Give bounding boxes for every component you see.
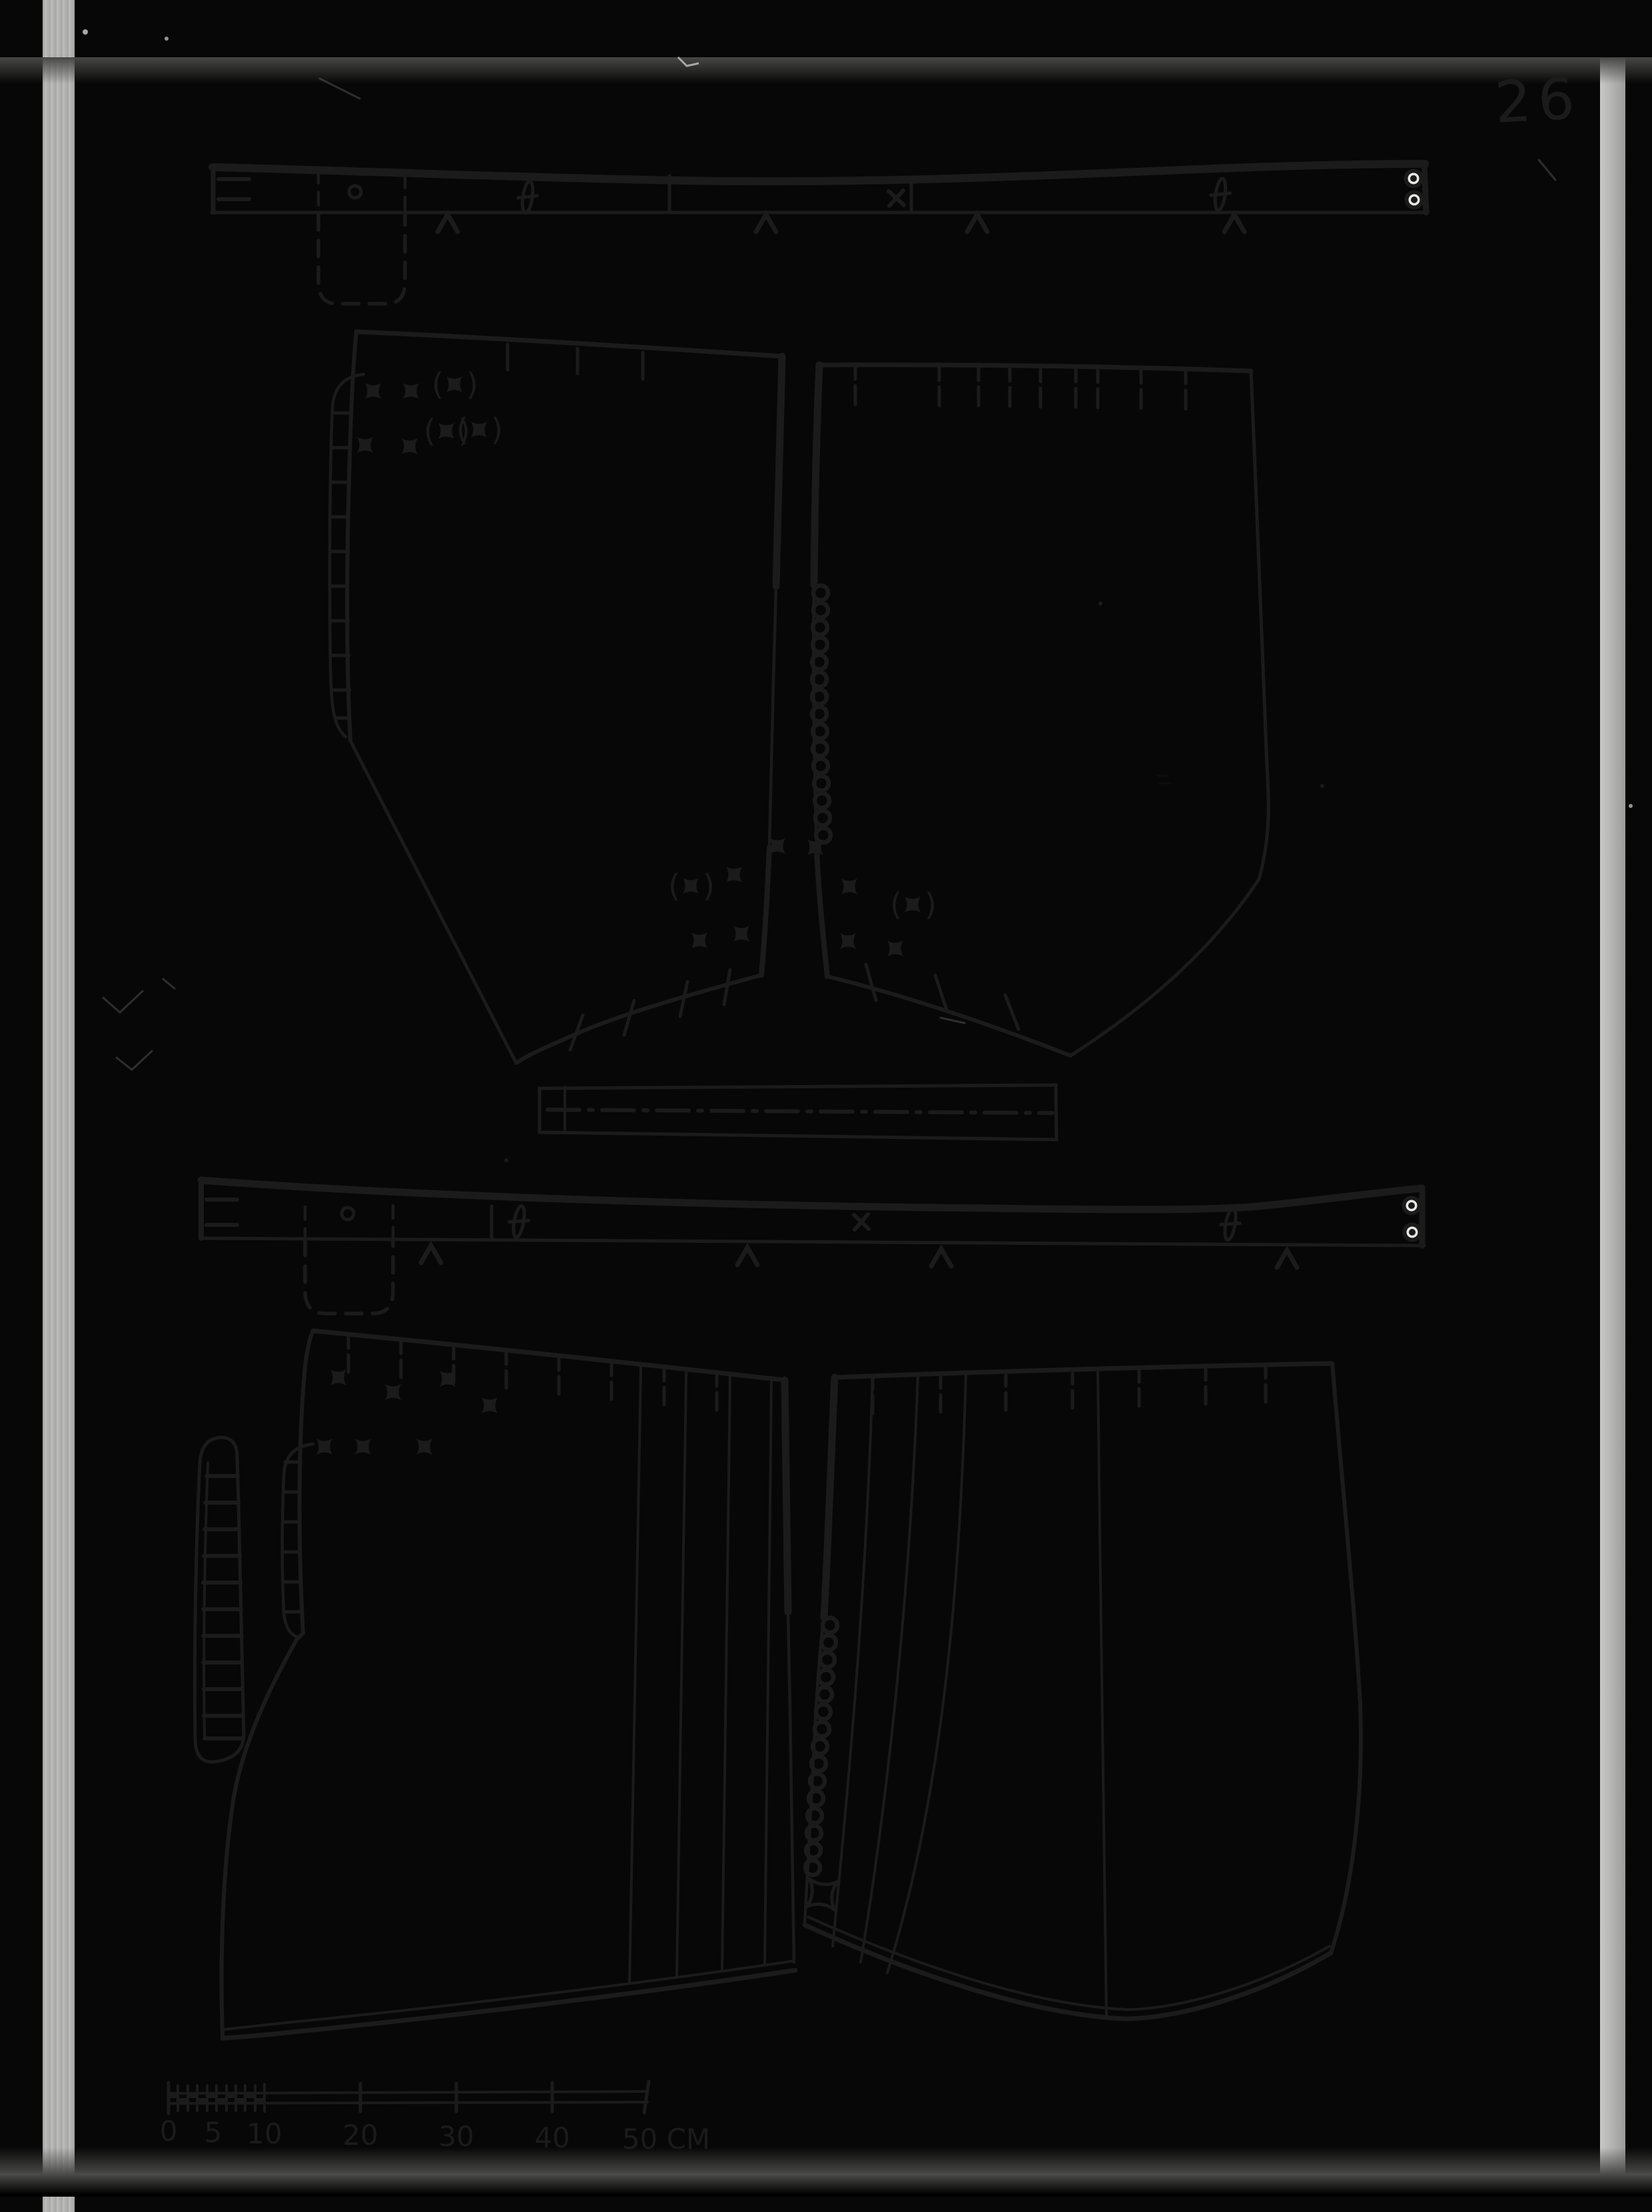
- scale-label: 20: [342, 2119, 378, 2151]
- svg-text:(: (: [424, 413, 436, 449]
- waistband-top: [212, 163, 1426, 304]
- page-number: 26: [1493, 65, 1583, 137]
- svg-text:): ): [466, 366, 478, 402]
- smudge: [1158, 776, 1170, 783]
- optional-button-mark: (): [668, 868, 715, 904]
- fold-line-dash-dot: [548, 1110, 1052, 1113]
- eyelet-icon: [1402, 1196, 1421, 1215]
- scale-bar: [169, 2081, 649, 2113]
- fly-strip: [540, 1085, 1056, 1140]
- optional-button-mark: (): [432, 366, 478, 402]
- hem-inner-line: [223, 1961, 794, 2029]
- pocket-bag-dashed: [318, 214, 405, 304]
- svg-text:): ): [925, 887, 937, 922]
- panel-lines: [833, 1369, 1106, 2017]
- clasp-mark: [807, 1879, 837, 1910]
- scratches: [103, 79, 1555, 1070]
- scanned-pattern-sheet: 26: [0, 0, 1652, 2212]
- pocket-opening-dashed: [305, 1206, 393, 1238]
- scale-label: 50 CM: [622, 2123, 710, 2155]
- svg-text:(: (: [668, 868, 680, 904]
- button-marks-upper-right: (): [807, 839, 937, 956]
- top-notch-ticks: [508, 344, 643, 379]
- top-notch-ticks: [855, 367, 1186, 409]
- pattern-piece-upper-right: [812, 365, 1268, 1056]
- buttonhole-icon: [507, 1204, 531, 1239]
- eyelet-icon: [1403, 1223, 1422, 1242]
- pocket-bag-dashed: [305, 1240, 393, 1313]
- buttonhole-icon: [1218, 1207, 1242, 1242]
- scale-label: 5: [205, 2116, 222, 2149]
- hem-outer-line: [222, 1970, 795, 2038]
- scale-label: 40: [534, 2121, 570, 2154]
- dust-specks: [83, 29, 1633, 1162]
- fly-facing-piece: [195, 1437, 244, 1762]
- optional-button-mark: (): [890, 887, 937, 922]
- button-marks-lower-left: [316, 1369, 498, 1455]
- scale-labels: 0 5 10 20 30 40 50 CM: [160, 2115, 711, 2155]
- scale-label: 10: [246, 2117, 282, 2150]
- x-mark: [854, 1214, 869, 1230]
- svg-text:(: (: [456, 412, 468, 448]
- fly-extension-ladder: [282, 1444, 313, 1637]
- pattern-piece-lower-left: [222, 1331, 795, 2038]
- x-mark: [889, 190, 904, 206]
- pattern-piece-upper-left: [330, 332, 782, 1063]
- button-marks-upper-left: () () () (): [357, 366, 785, 948]
- grainline-marks: [206, 1200, 237, 1225]
- top-notch-ticks: [348, 1337, 717, 1410]
- buttonhole-icon: [1209, 177, 1232, 211]
- grainline-marks: [218, 179, 249, 199]
- eyelet-icon: [1404, 169, 1423, 188]
- eyelet-icon: [1405, 190, 1424, 209]
- notch-icons: [438, 214, 1244, 232]
- notch-icons: [421, 1246, 1297, 1268]
- panel-lines: [629, 1367, 771, 1982]
- svg-text:): ): [491, 412, 503, 448]
- svg-text:): ): [703, 868, 715, 904]
- svg-text:(: (: [890, 887, 902, 922]
- scale-label: 0: [160, 2115, 178, 2147]
- hem-notch-ticks: [866, 964, 1019, 1029]
- hem-inner-line: [808, 1917, 1330, 2010]
- hem-outer-line: [805, 1925, 1331, 2019]
- optional-button-mark: (): [456, 412, 503, 448]
- hem-notch-ticks: [570, 970, 730, 1050]
- svg-text:(: (: [432, 366, 444, 402]
- pattern-piece-lower-right: [805, 1363, 1361, 2019]
- waistband-bottom: [201, 1180, 1424, 1313]
- pattern-drawing: 26: [0, 0, 1652, 2212]
- buttonhole-icon: [516, 180, 539, 214]
- button-circle: [342, 1208, 354, 1220]
- button-circle: [349, 186, 361, 198]
- scale-label: 30: [438, 2120, 474, 2153]
